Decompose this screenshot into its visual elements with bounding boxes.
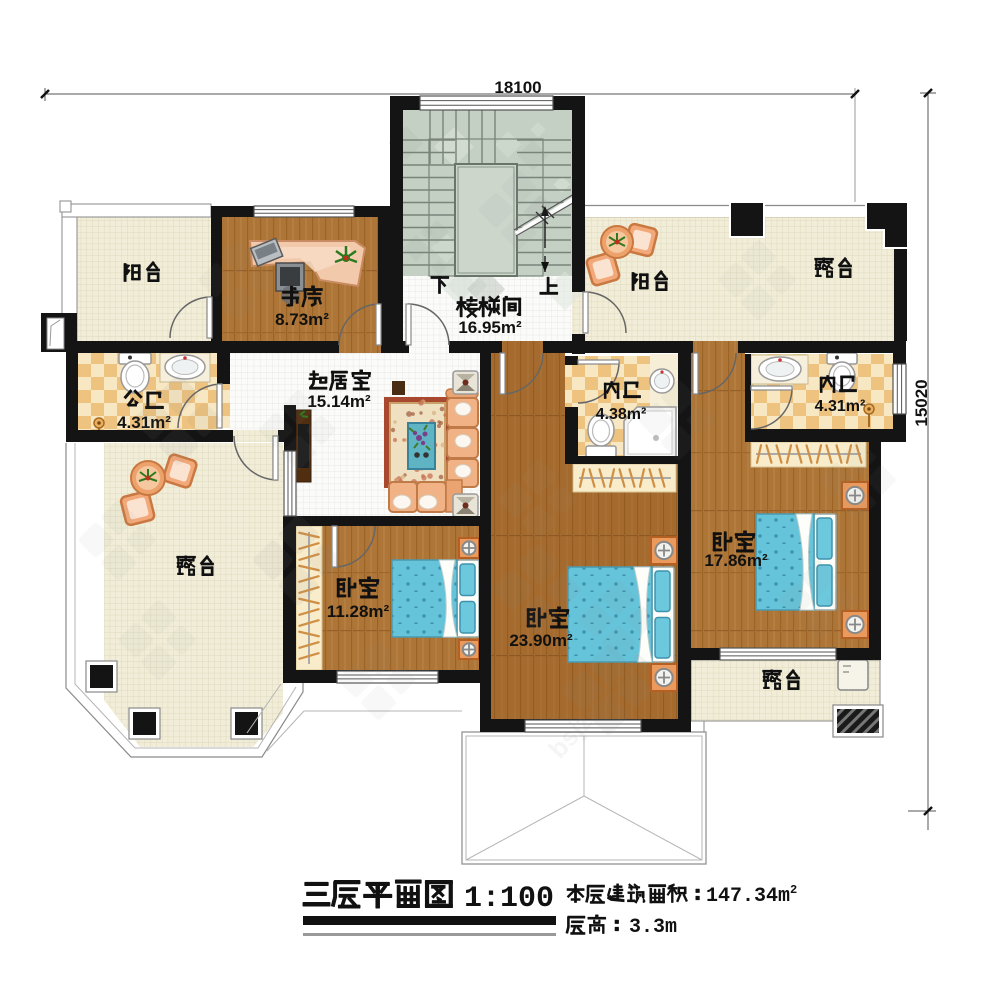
svg-text:15020: 15020: [912, 379, 931, 426]
svg-text:1:100: 1:100: [464, 882, 554, 916]
svg-text:8.73m²: 8.73m²: [275, 310, 329, 329]
svg-text:18100: 18100: [494, 78, 541, 97]
svg-text:4.38m²: 4.38m²: [596, 406, 647, 423]
svg-text:16.95m²: 16.95m²: [458, 318, 522, 337]
svg-text:4.31m²: 4.31m²: [815, 398, 866, 415]
svg-text:147.34m: 147.34m: [706, 885, 790, 908]
svg-text:11.28m²: 11.28m²: [327, 602, 390, 621]
svg-text:17.86m²: 17.86m²: [704, 551, 768, 570]
svg-text:2: 2: [790, 883, 797, 897]
svg-text:3.3m: 3.3m: [629, 916, 677, 939]
svg-text:15.14m²: 15.14m²: [307, 392, 371, 411]
